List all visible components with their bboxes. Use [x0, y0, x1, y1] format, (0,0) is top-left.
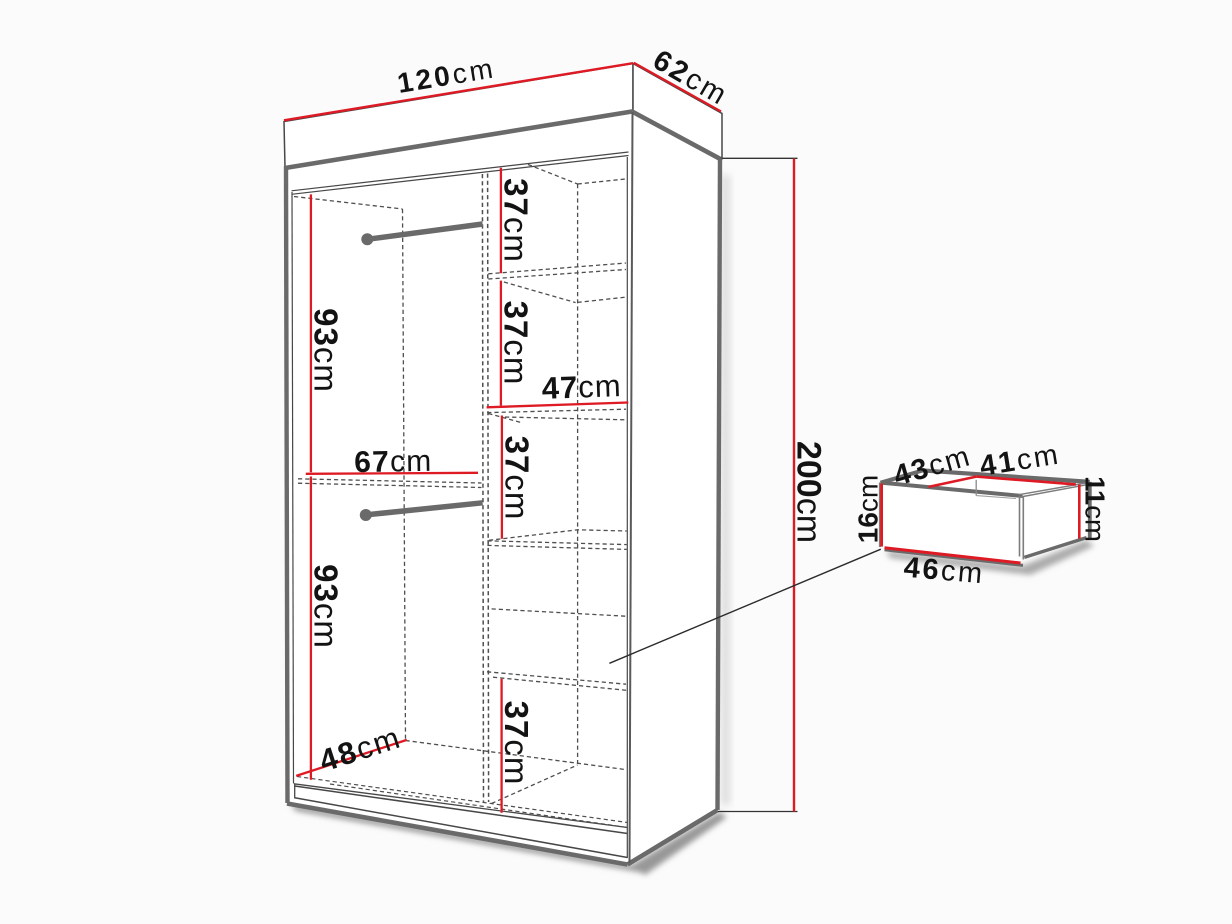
- svg-text:93cm: 93cm: [308, 564, 345, 649]
- svg-text:11cm: 11cm: [1080, 476, 1111, 542]
- svg-text:37cm: 37cm: [498, 701, 535, 786]
- svg-text:37cm: 37cm: [498, 178, 535, 263]
- svg-text:37cm: 37cm: [498, 301, 535, 386]
- svg-text:47cm: 47cm: [541, 368, 622, 406]
- svg-text:46cm: 46cm: [903, 552, 986, 591]
- svg-text:93cm: 93cm: [308, 308, 345, 393]
- svg-text:200cm: 200cm: [790, 441, 828, 543]
- svg-text:41cm: 41cm: [978, 438, 1063, 482]
- svg-text:16cm: 16cm: [853, 475, 884, 543]
- svg-text:67cm: 67cm: [354, 445, 433, 479]
- svg-text:37cm: 37cm: [499, 436, 536, 521]
